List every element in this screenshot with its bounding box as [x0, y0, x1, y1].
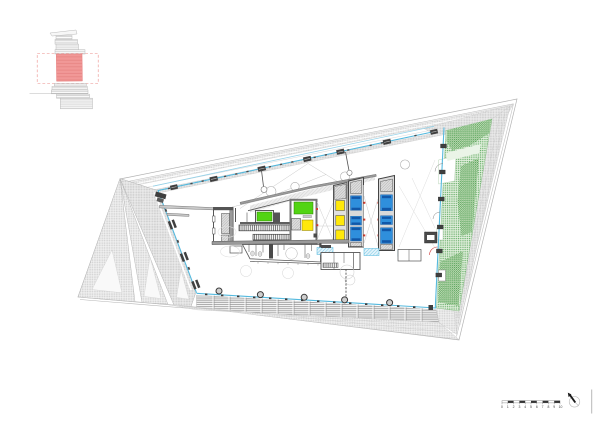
svg-text:2: 2 [513, 405, 515, 409]
svg-text:8: 8 [547, 405, 549, 409]
svg-text:4: 4 [524, 405, 526, 409]
svg-text:7: 7 [542, 405, 544, 409]
svg-text:9: 9 [553, 405, 555, 409]
svg-text:10: 10 [559, 405, 563, 409]
svg-text:5: 5 [530, 405, 532, 409]
svg-text:1: 1 [507, 405, 509, 409]
svg-text:0: 0 [501, 405, 503, 409]
svg-text:3: 3 [518, 405, 520, 409]
svg-text:6: 6 [536, 405, 538, 409]
